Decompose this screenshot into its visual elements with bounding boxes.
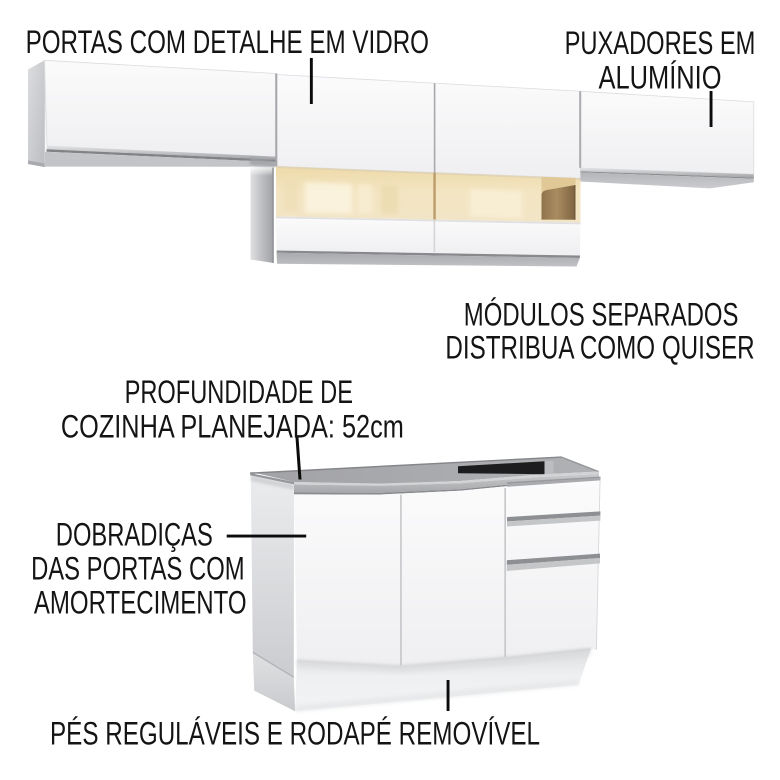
svg-text:DOBRADIÇAS: DOBRADIÇAS: [56, 517, 213, 553]
svg-text:COZINHA PLANEJADA: 52cm: COZINHA PLANEJADA: 52cm: [61, 408, 404, 444]
svg-text:PORTAS COM DETALHE EM VIDRO: PORTAS COM DETALHE EM VIDRO: [26, 24, 429, 60]
svg-text:DAS PORTAS COM: DAS PORTAS COM: [31, 551, 245, 587]
svg-text:DISTRIBUA COMO QUISER: DISTRIBUA COMO QUISER: [445, 329, 754, 365]
svg-text:PROFUNDIDADE DE: PROFUNDIDADE DE: [125, 374, 353, 410]
svg-text:ALUMÍNIO: ALUMÍNIO: [599, 59, 722, 95]
svg-text:PUXADORES EM: PUXADORES EM: [565, 25, 756, 61]
svg-text:MÓDULOS SEPARADOS: MÓDULOS SEPARADOS: [464, 297, 739, 333]
svg-text:AMORTECIMENTO: AMORTECIMENTO: [34, 585, 247, 621]
svg-text:PÉS REGULÁVEIS E RODAPÉ REMOVÍ: PÉS REGULÁVEIS E RODAPÉ REMOVÍVEL: [50, 716, 540, 752]
